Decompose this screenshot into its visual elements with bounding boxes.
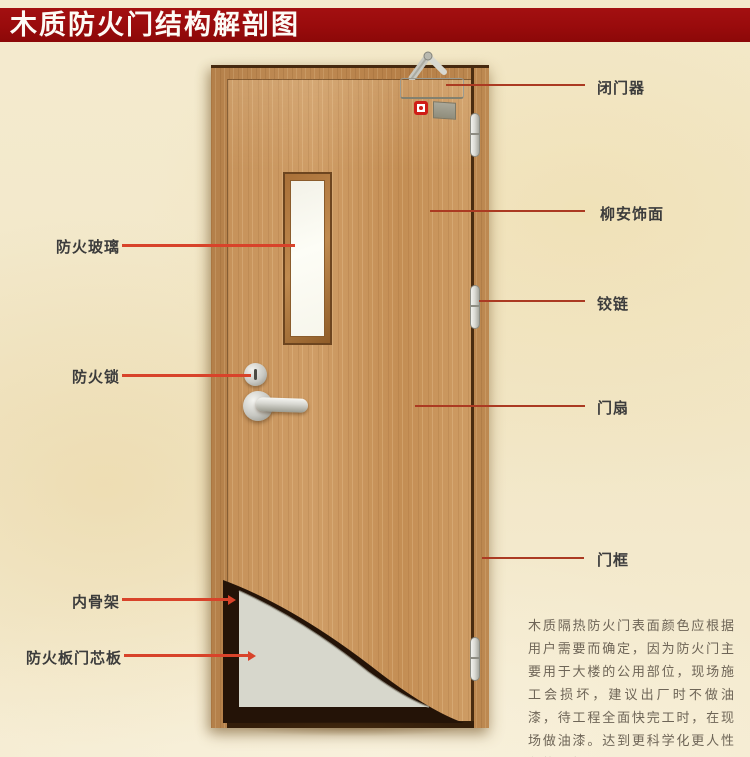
label-fire-lock: 防火锁	[72, 366, 120, 387]
leader-hinge	[479, 300, 585, 302]
keyhole-slot	[254, 369, 257, 380]
leader-fire-glass	[122, 244, 295, 247]
door-shadow	[203, 722, 503, 742]
label-inner-skeleton: 内骨架	[72, 591, 120, 612]
label-door-frame: 门框	[597, 549, 629, 570]
leader-fire-board-core-arrowhead	[248, 651, 256, 661]
fire-glass-window	[283, 172, 332, 345]
leader-door-closer	[446, 84, 585, 86]
label-fire-board-core: 防火板门芯板	[26, 647, 122, 668]
product-description: 木质隔热防火门表面颜色应根据用户需要而确定，因为防火门主要用于大楼的公用部位，现…	[528, 614, 735, 757]
fire-door-diagram: 木质防火门结构解剖图	[0, 0, 750, 757]
label-hinge: 铰链	[597, 293, 629, 314]
label-fire-glass: 防火玻璃	[56, 236, 120, 257]
leader-inner-skeleton-arrowhead	[228, 595, 236, 605]
leader-inner-skeleton	[122, 598, 228, 601]
label-door-leaf: 门扇	[597, 397, 629, 418]
certification-plate-icon	[433, 101, 456, 120]
cutaway-illustration	[211, 560, 491, 730]
lever-handle-icon	[256, 397, 308, 413]
label-door-closer: 闭门器	[597, 77, 645, 98]
leader-fire-board-core	[124, 654, 248, 657]
label-lauan-veneer: 柳安饰面	[600, 203, 664, 224]
title-banner: 木质防火门结构解剖图	[0, 8, 750, 42]
door-closer-arm-icon	[398, 48, 470, 80]
hinge-icon-bottom	[470, 637, 480, 681]
hinge-icon-middle	[470, 285, 480, 329]
alarm-indicator-icon	[414, 101, 428, 115]
page-title: 木质防火门结构解剖图	[0, 8, 750, 42]
fire-glass-pane	[290, 180, 325, 337]
leader-fire-lock	[122, 374, 251, 377]
indicator-dot	[419, 106, 423, 110]
leader-door-leaf	[415, 405, 585, 407]
door-closer-body-icon	[400, 78, 464, 99]
leader-door-frame	[482, 557, 584, 559]
hinge-icon-top	[470, 113, 480, 157]
leader-lauan-veneer	[430, 210, 585, 212]
